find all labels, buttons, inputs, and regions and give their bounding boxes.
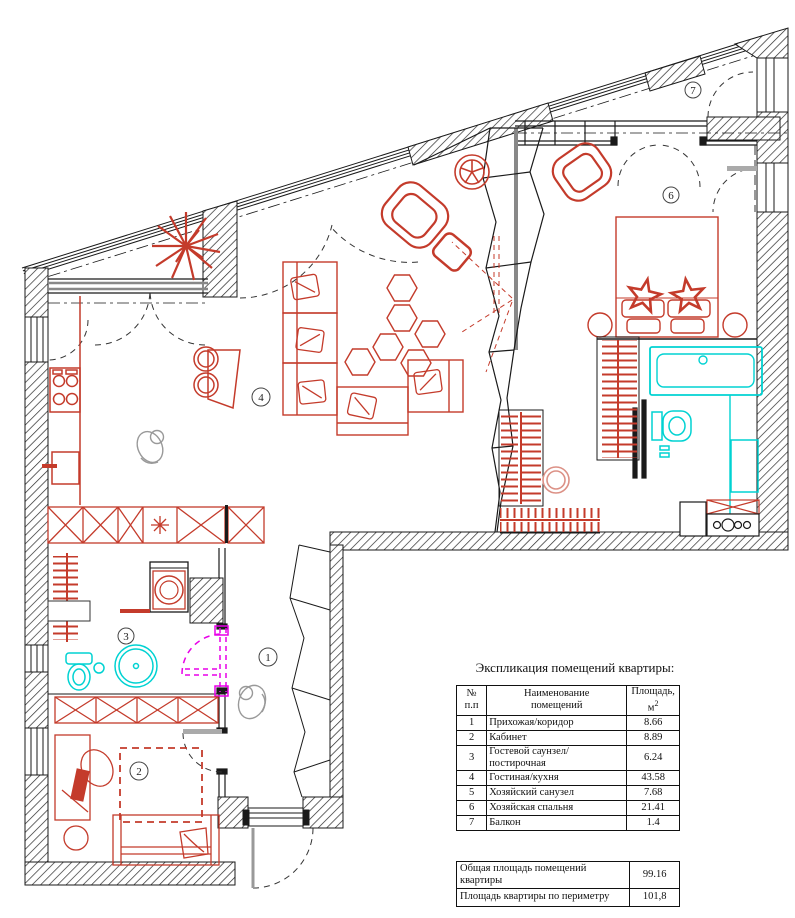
facade-corner — [735, 28, 788, 58]
armchair-bedroom — [547, 137, 617, 206]
room-number-cabinet: 2 — [130, 762, 148, 780]
explication-table: № п.п Наименование помещений Площадь, м2… — [456, 685, 680, 831]
pillow-star — [625, 276, 663, 313]
hexagon-shelves — [345, 275, 445, 376]
bathtub — [650, 347, 762, 395]
armchair-living — [375, 176, 454, 254]
duct-pier — [190, 578, 223, 623]
room-number-living: 4 — [252, 388, 270, 406]
shower — [115, 645, 157, 687]
svg-text:3: 3 — [123, 631, 129, 643]
door-swing — [713, 168, 757, 212]
header-num: № п.п — [457, 686, 487, 716]
door-swing — [150, 290, 205, 345]
bar-stool — [194, 347, 218, 371]
svg-text:2: 2 — [136, 766, 142, 778]
svg-text:6: 6 — [668, 190, 674, 202]
person-hallway — [234, 682, 270, 723]
mirror-asterisk — [151, 516, 169, 534]
summary-row: Общая площадь помещений квартиры 99.16 — [457, 861, 680, 888]
table-row: 3 Гостевой саунзел/постирочная 6.24 — [457, 745, 680, 770]
summary-table: Общая площадь помещений квартиры 99.16 П… — [456, 861, 680, 907]
nightstand — [588, 313, 612, 337]
door-swing — [95, 290, 150, 345]
master-bathroom — [650, 347, 762, 536]
summary-row: Площадь квартиры по периметру 101,8 — [457, 888, 680, 906]
facade-pier — [408, 103, 553, 165]
explication-title: Экспликация помещений квартиры: — [456, 660, 694, 676]
cabinet-room — [55, 697, 219, 865]
header-area: Площадь, м2 — [627, 686, 680, 716]
svg-text:1: 1 — [265, 652, 271, 664]
svg-text:7: 7 — [690, 85, 696, 97]
master-bedroom — [547, 137, 747, 337]
table-header-row: № п.п Наименование помещений Площадь, м2 — [457, 686, 680, 716]
table-row: 7 Балкон 1.4 — [457, 815, 680, 830]
hallway-faceted-wall — [290, 545, 330, 797]
bar-table — [208, 350, 240, 408]
sliding-door-magenta — [182, 626, 228, 696]
person-kitchen — [132, 427, 167, 466]
ceiling-fan — [455, 155, 489, 189]
table-row: 4 Гостиная/кухня 43.58 — [457, 770, 680, 785]
left-wall — [25, 672, 48, 728]
svg-text:4: 4 — [258, 392, 264, 404]
washing-machine — [150, 562, 188, 612]
door-swing — [708, 72, 753, 117]
table-row: 6 Хозяйская спальня 21.41 — [457, 800, 680, 815]
room-number-hallway: 1 — [259, 648, 277, 666]
left-wall — [25, 362, 48, 645]
sofa-modular — [283, 262, 463, 435]
door-swing — [618, 145, 659, 186]
left-wall — [25, 268, 48, 317]
room-number-bedroom: 6 — [663, 187, 679, 203]
door-swing — [48, 320, 88, 360]
explication-block: Экспликация помещений квартиры: № п.п На… — [456, 660, 694, 907]
vanity — [48, 601, 90, 621]
room-number-balcony: 7 — [685, 82, 701, 98]
bar-stool — [194, 373, 218, 397]
sofa-pillows — [290, 274, 442, 420]
window-left-1 — [25, 317, 48, 362]
room-number-guest-bath: 3 — [118, 628, 134, 644]
bed — [616, 217, 718, 337]
bath-bench — [707, 500, 759, 514]
toilet-guest — [66, 653, 104, 690]
stove — [50, 368, 80, 412]
kitchen-glass-partition — [48, 279, 208, 303]
projection-lines — [452, 236, 512, 372]
shower-tray — [731, 440, 758, 492]
nightstand — [723, 313, 747, 337]
balcony-pier — [707, 117, 780, 140]
table-row: 1 Прихожая/коридор 8.66 — [457, 715, 680, 730]
window-bedroom-right — [757, 163, 788, 212]
window-left-2 — [25, 645, 48, 672]
kitchen — [42, 296, 240, 505]
pillow-star — [670, 277, 706, 312]
ottoman — [431, 231, 474, 273]
window-left-3 — [25, 728, 48, 775]
window-balcony-right — [757, 58, 788, 112]
guest-bathroom — [48, 553, 228, 696]
toilet-master — [652, 411, 691, 457]
pouf — [543, 467, 569, 493]
door-swing — [330, 226, 418, 262]
hallway-exit-door — [243, 808, 309, 826]
door-swing — [253, 828, 313, 888]
hall-wardrobe — [48, 505, 264, 543]
door-swing — [659, 145, 700, 187]
header-name: Наименование помещений — [487, 686, 627, 716]
laundry-unit — [680, 502, 759, 536]
table-row: 2 Кабинет 8.89 — [457, 730, 680, 745]
stool — [64, 826, 88, 850]
fold-out-bed-outline — [120, 748, 202, 822]
hallway-outer-wall — [330, 545, 343, 797]
walk-in-closet — [499, 337, 639, 533]
floor-plan-sheet: 1 2 3 4 6 7 Экспликация помещений кварти… — [0, 0, 795, 918]
cabinet-wardrobe — [55, 697, 218, 723]
table-row: 5 Хозяйский санузел 7.68 — [457, 785, 680, 800]
